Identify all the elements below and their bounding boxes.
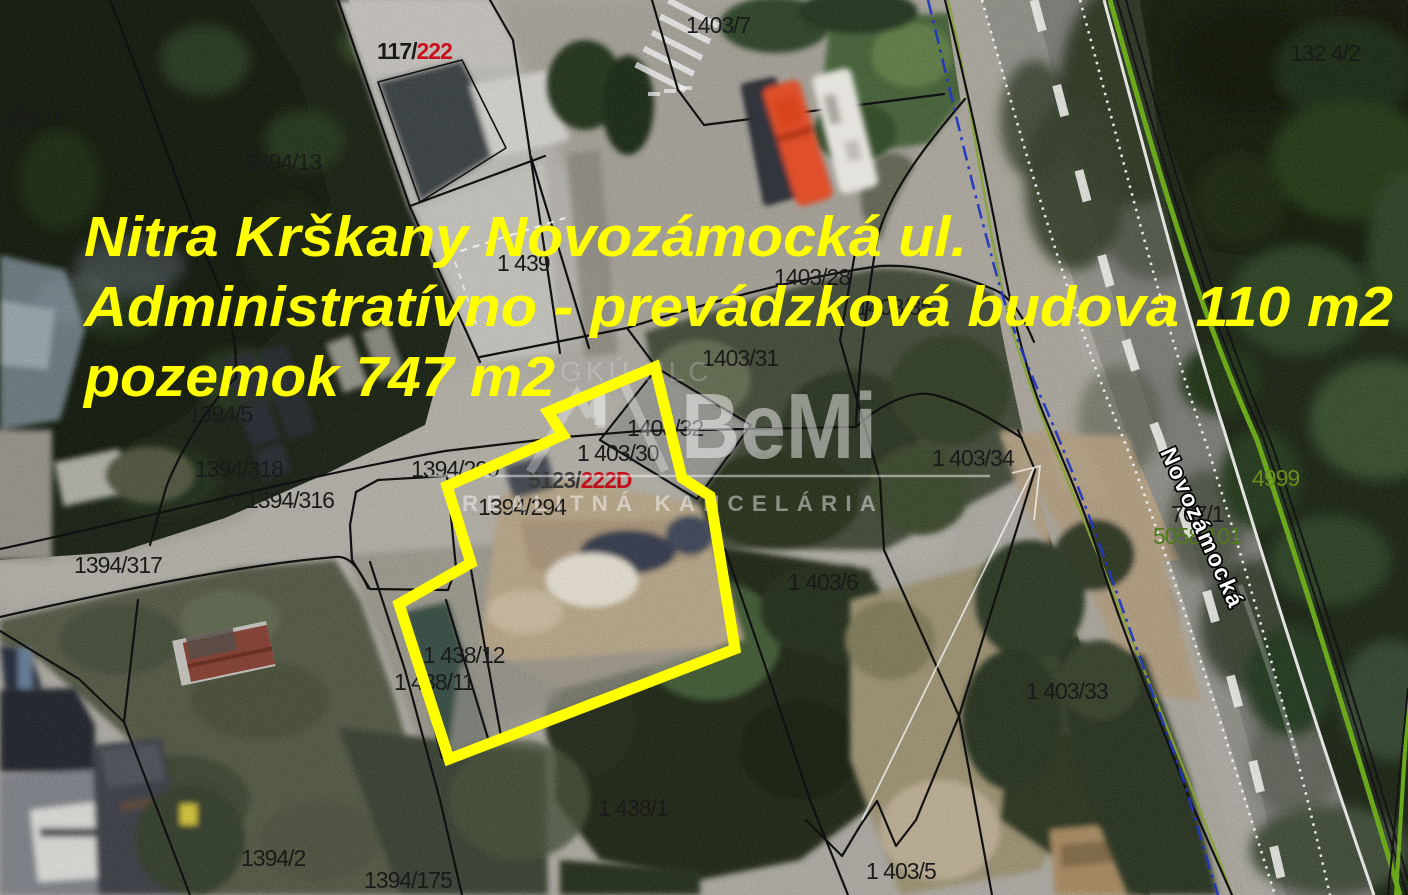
svg-text:1 403/30: 1 403/30 [577,440,659,466]
svg-text:132 4/2: 132 4/2 [1290,40,1360,66]
svg-text:117/222: 117/222 [377,38,452,64]
svg-text:1403/31: 1403/31 [702,345,778,371]
svg-text:1394/316: 1394/316 [246,487,334,513]
svg-text:1394/317: 1394/317 [74,552,162,578]
svg-text:1394/318: 1394/318 [195,456,283,482]
svg-text:1 403/6: 1 403/6 [788,569,858,595]
svg-text:1 438/12: 1 438/12 [423,642,505,668]
svg-text:5123/222D: 5123/222D [528,467,632,493]
svg-text:BeMi: BeMi [681,374,877,478]
svg-text:Nitra Krškany Novozámocká ul.: Nitra Krškany Novozámocká ul. [84,205,967,269]
svg-text:REALITNÁ KANCELÁRIA: REALITNÁ KANCELÁRIA [462,491,884,516]
svg-text:1394/2: 1394/2 [241,845,306,871]
svg-text:1394/175: 1394/175 [364,867,452,893]
svg-text:1394/11: 1394/11 [0,104,64,130]
svg-text:1 438/1: 1 438/1 [598,795,668,821]
svg-text:4999: 4999 [1252,465,1299,491]
svg-text:pozemok 747 m2: pozemok 747 m2 [82,345,555,409]
svg-text:1 403/33: 1 403/33 [1026,678,1108,704]
svg-text:1 438/11: 1 438/11 [394,669,474,695]
svg-text:1394/13: 1394/13 [245,149,321,175]
svg-text:1 403/34: 1 403/34 [932,445,1015,471]
svg-text:1 403/5: 1 403/5 [866,858,936,884]
svg-text:1403/7: 1403/7 [686,12,751,38]
svg-text:Administratívno - prevádzková: Administratívno - prevádzková budova 110… [82,275,1393,339]
